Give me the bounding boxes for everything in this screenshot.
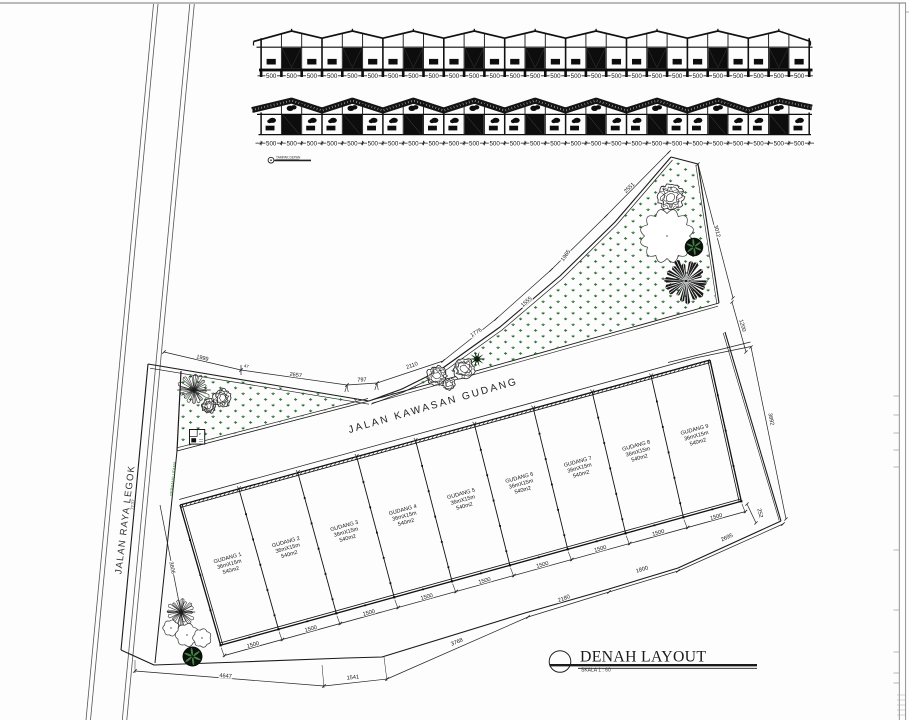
svg-text:500: 500	[327, 140, 338, 147]
svg-text:500: 500	[510, 73, 521, 80]
svg-text:500: 500	[672, 140, 683, 147]
svg-text:P: P	[199, 432, 201, 436]
svg-text:500: 500	[327, 73, 338, 80]
svg-text:500: 500	[794, 140, 805, 147]
svg-text:500: 500	[530, 73, 541, 80]
svg-text:500: 500	[266, 73, 277, 80]
svg-text:500: 500	[428, 140, 439, 147]
svg-text:500: 500	[347, 140, 358, 147]
svg-text:500: 500	[469, 73, 480, 80]
svg-text:500: 500	[652, 73, 663, 80]
svg-text:500: 500	[449, 140, 460, 147]
svg-text:500: 500	[631, 73, 642, 80]
svg-text:500: 500	[774, 140, 785, 147]
svg-text:500: 500	[652, 140, 663, 147]
svg-text:500: 500	[550, 73, 561, 80]
svg-text:500: 500	[672, 73, 683, 80]
svg-text:SKALA 1 : 60: SKALA 1 : 60	[581, 668, 611, 674]
svg-text:500: 500	[388, 140, 399, 147]
svg-text:500: 500	[469, 140, 480, 147]
svg-text:500: 500	[611, 73, 622, 80]
svg-text:4647: 4647	[219, 673, 232, 680]
svg-text:500: 500	[388, 73, 399, 80]
svg-text:500: 500	[733, 140, 744, 147]
svg-text:500: 500	[753, 73, 764, 80]
svg-text:500: 500	[794, 73, 805, 80]
svg-text:500: 500	[286, 140, 297, 147]
svg-text:500: 500	[408, 140, 419, 147]
svg-text:500: 500	[611, 140, 622, 147]
svg-text:500: 500	[713, 140, 724, 147]
svg-text:500: 500	[510, 140, 521, 147]
svg-text:500: 500	[571, 73, 582, 80]
svg-text:797: 797	[357, 377, 367, 383]
svg-text:500: 500	[591, 73, 602, 80]
svg-text:500: 500	[530, 140, 541, 147]
svg-text:500: 500	[266, 140, 277, 147]
svg-text:500: 500	[571, 140, 582, 147]
svg-text:500: 500	[591, 140, 602, 147]
svg-text:500: 500	[774, 73, 785, 80]
svg-text:500: 500	[307, 73, 318, 80]
svg-text:500: 500	[550, 140, 561, 147]
svg-text:500: 500	[692, 73, 703, 80]
svg-text:500: 500	[489, 73, 500, 80]
svg-text:500: 500	[428, 73, 439, 80]
svg-text:DENAH LAYOUT: DENAH LAYOUT	[580, 649, 706, 666]
svg-text:500: 500	[368, 140, 379, 147]
svg-text:500: 500	[489, 140, 500, 147]
svg-text:500: 500	[753, 140, 764, 147]
svg-text:500: 500	[692, 140, 703, 147]
svg-text:500: 500	[307, 140, 318, 147]
svg-text:500: 500	[449, 73, 460, 80]
svg-text:500: 500	[408, 73, 419, 80]
svg-text:TAMPAK DEPAN: TAMPAK DEPAN	[276, 156, 301, 160]
svg-text:500: 500	[347, 73, 358, 80]
svg-text:500: 500	[733, 73, 744, 80]
svg-text:500: 500	[713, 73, 724, 80]
svg-text:500: 500	[368, 73, 379, 80]
svg-text:500: 500	[286, 73, 297, 80]
svg-text:500: 500	[631, 140, 642, 147]
